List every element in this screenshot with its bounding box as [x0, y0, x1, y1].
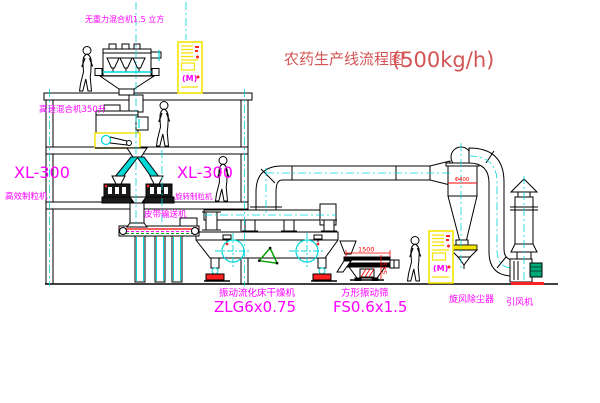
label-granulator-right-name: 旋转制粒机 — [175, 191, 213, 201]
label-granulator-left-model: XL-300 — [14, 163, 70, 182]
conveyor-supports — [135, 236, 182, 282]
worker-figure-floor2 — [157, 102, 170, 147]
fan-base — [511, 282, 544, 285]
label-granulator-right-model: XL-300 — [177, 163, 233, 182]
label-belt-conveyor: 皮带输送机 — [144, 209, 187, 220]
worker-figure-roof — [80, 47, 93, 92]
duct-dryer-to-cyclone — [250, 161, 450, 212]
fluid-bed-dryer — [196, 204, 356, 281]
induced-draft-fan — [510, 259, 544, 285]
y-splitter-chute — [114, 157, 160, 178]
control-cabinet-lower: (M) — [429, 231, 453, 283]
label-high-speed-mixer: 高速混合机350升 — [39, 104, 107, 115]
dryer-foot-right — [313, 274, 331, 280]
label-no-gravity-mixer: 无重力混合机1.5 立方 — [85, 14, 164, 24]
cabinet-panel-symbol: (M) — [182, 74, 197, 83]
floor-chute — [130, 203, 144, 223]
label-granulator-left-name: 高效制粒机 — [5, 191, 48, 202]
dim-sieve-length: 1500 — [358, 246, 375, 254]
dim-sieve-height: 545 — [381, 262, 389, 274]
label-cyclone: 旋风除尘器 — [449, 293, 494, 305]
worker-figure-ground — [408, 237, 421, 282]
vibrating-sieve — [337, 250, 399, 281]
page-title: 农药生产线流程图 — [284, 50, 404, 68]
page-title-capacity: (500kg/h) — [392, 48, 494, 72]
control-cabinet-upper: (M) — [178, 42, 202, 93]
dryer-foot-left — [206, 274, 224, 280]
no-gravity-mixer — [95, 44, 161, 112]
flow-diagram-canvas: (M) (M) 农药生产线流程图 (500kg/h) 无重力混 — [0, 0, 600, 403]
fan-motor — [530, 263, 542, 277]
label-sieve-model: FS0.6x1.5 — [333, 298, 407, 316]
dryer-discharge-funnel — [340, 241, 356, 254]
pesticide-line-flow-diagram: (M) (M) 农药生产线流程图 (500kg/h) 无重力混 — [0, 0, 600, 403]
dim-cyclone-diameter: Φ400 — [455, 177, 470, 183]
label-dryer-model: ZLG6x0.75 — [214, 298, 296, 316]
belt-conveyor — [119, 218, 199, 282]
cyclone-discharge-band — [451, 245, 477, 250]
label-fan: 引风机 — [506, 296, 533, 308]
cabinet-panel-symbol: (M) — [433, 264, 448, 273]
